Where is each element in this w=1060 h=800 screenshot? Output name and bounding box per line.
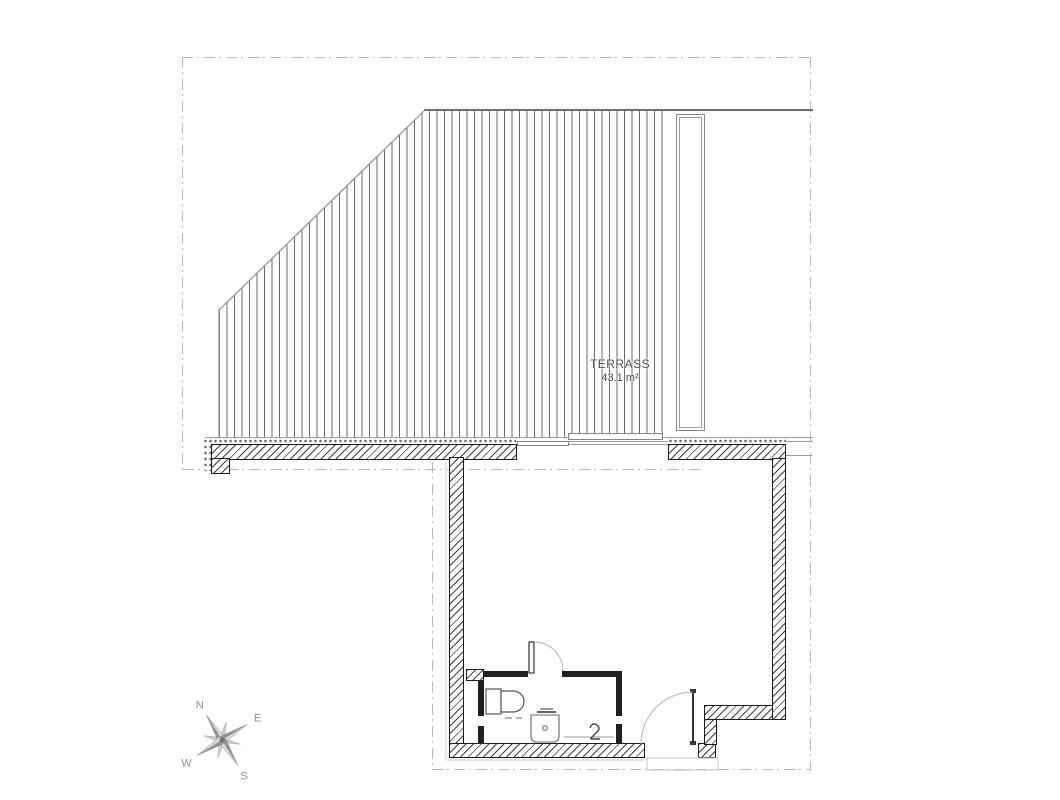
boundary-line-inner-vertical [432, 462, 433, 770]
terrace-top-edge-line [424, 109, 813, 111]
terrace-name: TERRASS [570, 357, 670, 371]
wall-south-left-stub [211, 458, 230, 474]
wall-east [772, 458, 786, 720]
bathroom-wall-top-right [562, 671, 622, 677]
toilet-bowl [501, 691, 524, 712]
wall-extension-line-2 [786, 455, 812, 456]
sink-basin [531, 715, 559, 742]
compass-label-north: N [196, 700, 204, 712]
bathroom-wall-right-upper [616, 677, 622, 716]
boundary-line-inner-horizontal [183, 469, 702, 470]
floor-plan-canvas: TERRASS 43.1 m² N E S W [0, 0, 1060, 800]
terrace-column-inner [679, 117, 702, 428]
wall-bottom [449, 743, 645, 758]
plumbing-wall-upper [478, 680, 484, 716]
bathroom-wall-right-lower [616, 724, 622, 743]
wall-south-left [211, 444, 517, 460]
wall-south-right [668, 444, 786, 460]
compass-label-south: S [241, 771, 248, 783]
boundary-line-left [182, 57, 183, 471]
entrance-door-hinge-bottom [690, 741, 696, 745]
terrace-hatch-area [219, 110, 663, 437]
bathroom-wall-top-left [484, 671, 528, 677]
terrace-area-value: 43.1 m² [570, 371, 670, 385]
wall-west [449, 457, 464, 758]
insulation-cap-west [203, 444, 211, 471]
floor-drain-symbol [590, 724, 600, 739]
compass-rose-icon: N E S W [172, 690, 272, 790]
bathroom-door-swing-arc [534, 642, 563, 671]
sliding-door-panel-upper [568, 433, 663, 440]
boundary-line-top [182, 57, 811, 58]
compass-center [220, 738, 225, 743]
boundary-line-right [810, 57, 811, 771]
terrace-label: TERRASS 43.1 m² [570, 357, 670, 385]
sink-drain [543, 726, 548, 731]
compass-label-east: E [254, 713, 261, 725]
sliding-door-panel-lower [517, 441, 569, 446]
entrance-door-swing-arc [641, 692, 693, 744]
toilet-cistern [486, 689, 501, 714]
compass-label-west: W [181, 757, 192, 769]
terrace-column [676, 114, 705, 431]
wall-extension-line-1 [786, 441, 812, 442]
wall-step-vertical [704, 719, 717, 745]
bathroom-door-leaf [529, 642, 534, 673]
wall-bottom-door-jamb [698, 743, 716, 758]
entrance-door-hinge-top [690, 689, 696, 693]
plumbing-wall-lower [478, 726, 484, 743]
boundary-line-bottom [432, 769, 811, 770]
